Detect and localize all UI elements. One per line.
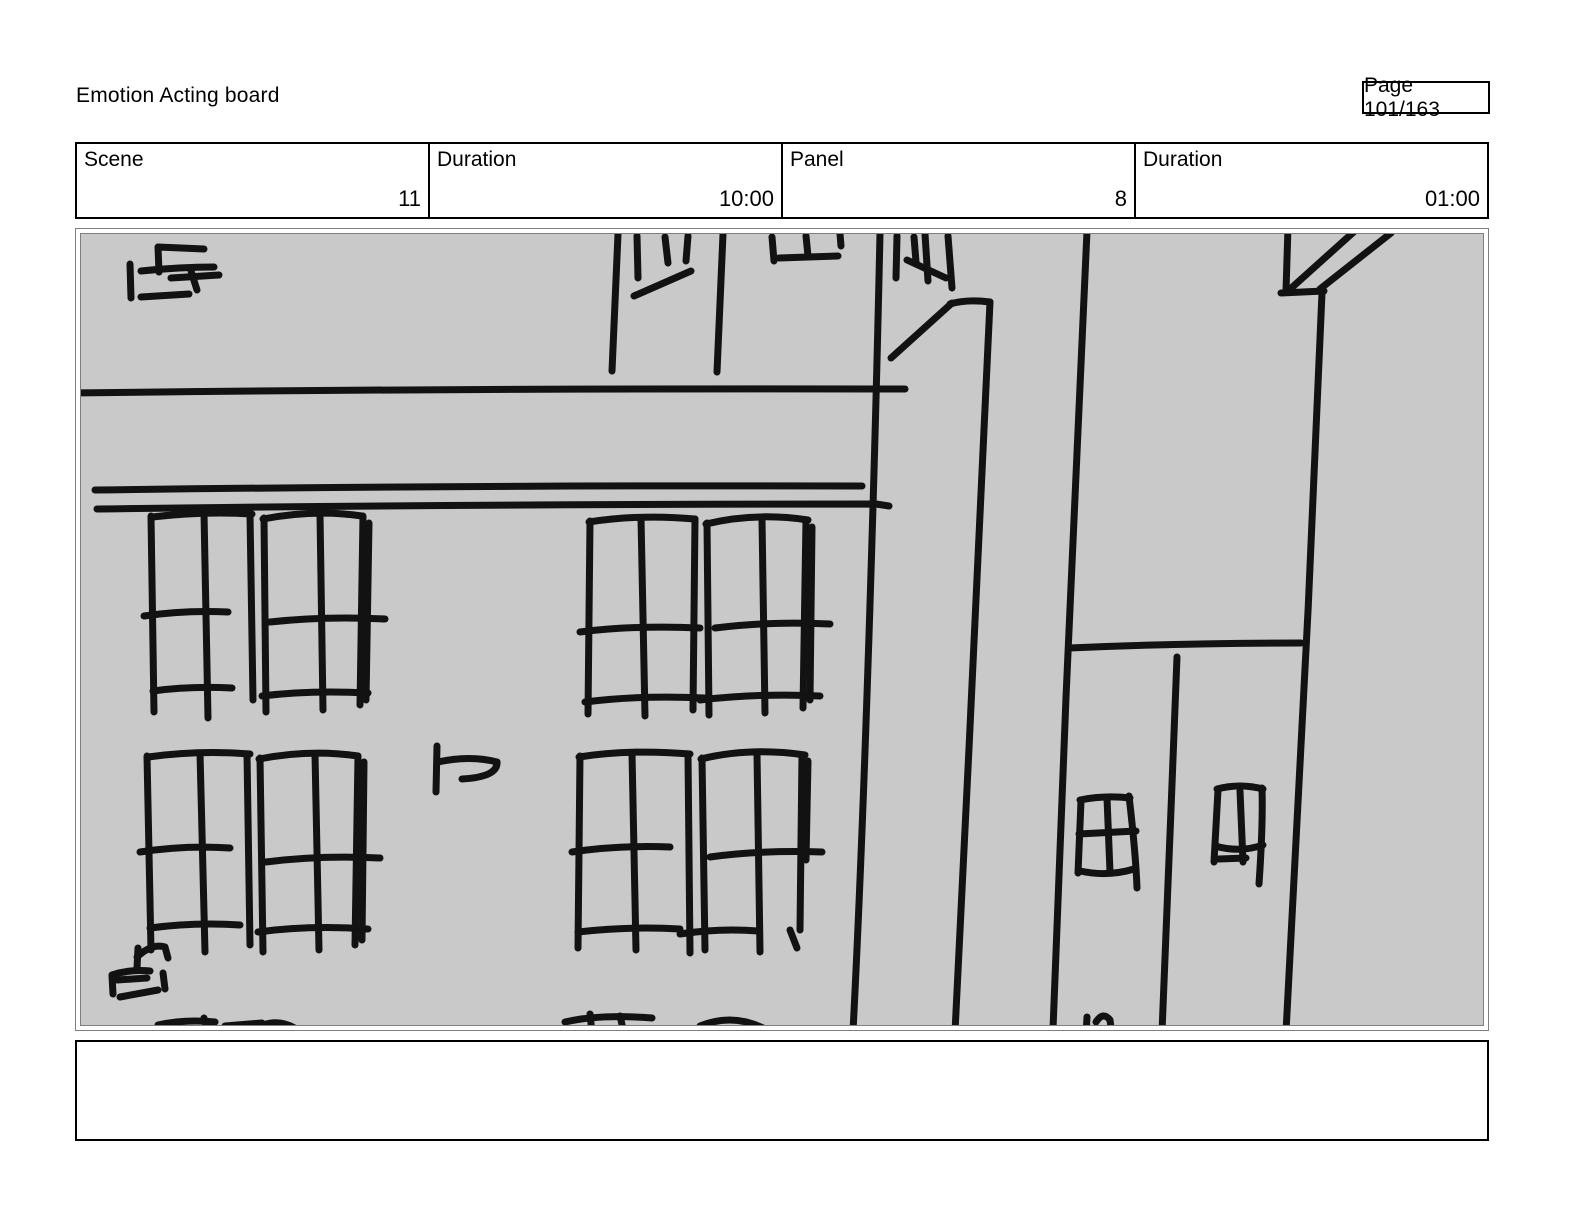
scene-value: 11 (84, 186, 421, 212)
sketch-stroke (141, 267, 214, 271)
sketch-stroke (803, 520, 806, 708)
sketch-stroke (95, 486, 862, 490)
panel-duration-value: 01:00 (1143, 186, 1480, 212)
sketch-stroke (360, 516, 363, 705)
sketch-stroke (264, 518, 266, 712)
sketch-stroke (140, 847, 230, 852)
sketch-stroke (925, 234, 928, 281)
sketch-stroke (891, 303, 952, 358)
sketch-stroke (840, 234, 841, 246)
sketch-stroke (438, 759, 497, 763)
sketch-stroke (693, 519, 695, 710)
sketch-stroke (588, 521, 590, 714)
sketch-stroke (806, 236, 808, 256)
sketch-stroke (896, 236, 897, 278)
panel-label: Panel (790, 148, 1127, 172)
sketch-stroke (247, 754, 250, 945)
sketch-stroke (81, 389, 905, 393)
sketch-stroke (853, 234, 880, 1025)
sketch-stroke (634, 271, 691, 296)
scene-duration-value: 10:00 (437, 186, 774, 212)
sketch-stroke (1286, 293, 1322, 1025)
sketch-stroke (578, 928, 680, 932)
sketch-stroke (262, 692, 368, 696)
page-number-label: Page 101/163 (1364, 74, 1488, 122)
sketch-stroke (1320, 234, 1391, 289)
sketch-stroke (641, 518, 645, 716)
notes-box (75, 1040, 1489, 1141)
sketch-stroke (637, 236, 638, 278)
sketch-stroke (1079, 831, 1136, 834)
header-table: Scene 11 Duration 10:00 Panel 8 Duration… (75, 142, 1489, 219)
header-cell-duration-panel: Duration 01:00 (1136, 144, 1487, 217)
sketch-stroke (810, 527, 812, 700)
sketch-stroke (320, 514, 323, 710)
sketch-stroke (362, 762, 364, 940)
sketch-stroke (263, 1023, 302, 1025)
sketch-stroke (950, 301, 990, 304)
sketch-stroke (436, 746, 437, 792)
sketch-stroke (97, 504, 889, 509)
sketch-stroke (366, 523, 369, 700)
sketch-stroke (1096, 1016, 1112, 1025)
sketch-stroke (620, 1016, 624, 1025)
sketch-stroke (1288, 234, 1357, 291)
sketch-stroke (707, 523, 709, 715)
sketch-stroke (680, 930, 758, 934)
sketch-stroke (270, 618, 385, 622)
sketch-stroke (1086, 1017, 1087, 1025)
sketch-stroke (565, 1017, 652, 1022)
sketch-stroke (686, 236, 688, 261)
sketch-stroke (150, 924, 240, 928)
sketch-stroke (914, 237, 916, 262)
sketch-svg (81, 234, 1483, 1025)
scene-duration-label: Duration (437, 148, 774, 172)
sketch-stroke (144, 612, 228, 617)
sketch-stroke (163, 973, 165, 989)
scene-label: Scene (84, 148, 421, 172)
storyboard-panel-canvas (80, 233, 1484, 1026)
sketch-stroke (688, 754, 690, 953)
sketch-stroke (762, 519, 765, 713)
sketch-stroke (1219, 858, 1246, 859)
sketch-stroke (355, 756, 358, 945)
sketch-stroke (259, 753, 358, 759)
sketch-stroke (1214, 790, 1218, 862)
sketch-stroke (1259, 788, 1262, 884)
sketch-stroke (130, 264, 131, 298)
sketch-stroke (572, 847, 670, 852)
header-cell-panel: Panel 8 (783, 144, 1136, 217)
sketch-stroke (315, 754, 319, 950)
header-cell-duration-scene: Duration 10:00 (430, 144, 783, 217)
sketch-stroke (260, 758, 263, 952)
sketch-stroke (120, 990, 158, 997)
sketch-stroke (702, 758, 705, 950)
sketch-stroke (706, 517, 808, 524)
sketch-stroke (665, 237, 668, 263)
sketch-stroke (800, 755, 802, 930)
storyboard-panel-frame (75, 228, 1489, 1031)
sketch-stroke (632, 753, 636, 950)
sketch-stroke (462, 762, 497, 779)
sketch-stroke (772, 237, 774, 261)
sketch-stroke (204, 1018, 208, 1025)
sketch-stroke (717, 234, 723, 372)
sketch-stroke (250, 514, 253, 700)
sketch-stroke (612, 234, 618, 371)
sketch-stroke (141, 294, 189, 297)
sketch-stroke (1069, 643, 1301, 648)
sketch-stroke (117, 978, 147, 980)
sketch-stroke (225, 1023, 262, 1025)
sketch-stroke (112, 971, 150, 976)
sketch-stroke (112, 976, 113, 994)
panel-value: 8 (790, 186, 1127, 212)
page-number-box: Page 101/163 (1362, 81, 1490, 114)
sketch-stroke (701, 752, 805, 759)
sketch-stroke (1286, 234, 1288, 291)
panel-duration-label: Duration (1143, 148, 1480, 172)
sketch-stroke (263, 513, 362, 519)
sketch-stroke (1053, 234, 1087, 1025)
header-cell-scene: Scene 11 (77, 144, 430, 217)
sketch-stroke (590, 1014, 592, 1025)
sketch-stroke (806, 761, 808, 860)
sketch-stroke (790, 930, 797, 948)
sketch-stroke (700, 1020, 763, 1025)
sketch-stroke (1129, 796, 1137, 888)
page-title: Emotion Acting board (76, 84, 280, 108)
sketch-stroke (1162, 657, 1177, 1025)
sketch-stroke (955, 302, 990, 1025)
sketch-stroke (153, 687, 232, 691)
sketch-stroke (258, 928, 368, 932)
